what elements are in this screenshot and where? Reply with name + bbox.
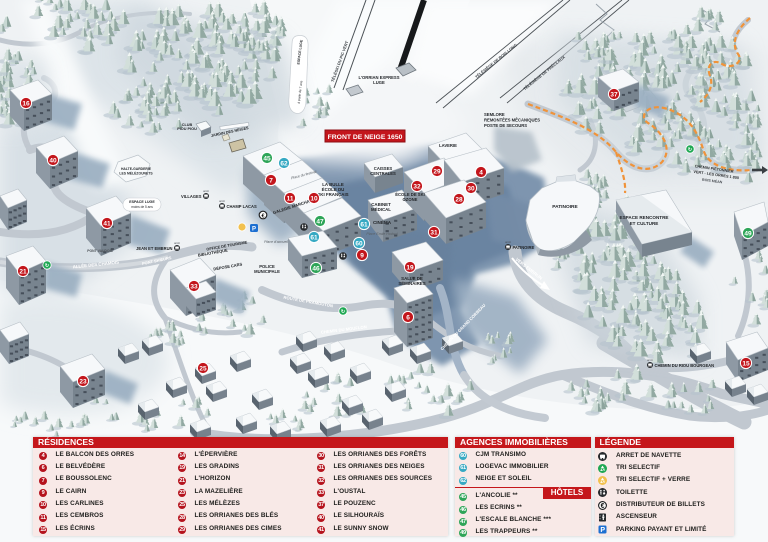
svg-text:19: 19 [406,264,414,271]
svg-text:€: € [601,503,605,510]
svg-text:JEAN ET EMBRUN: JEAN ET EMBRUN [136,246,172,251]
svg-text:LUGE: LUGE [373,80,385,85]
svg-text:CHAMP LACAS: CHAMP LACAS [227,204,257,209]
svg-text:46: 46 [312,265,320,272]
svg-text:€: € [261,214,264,220]
svg-text:61: 61 [310,234,318,241]
svg-text:PIOU PIOU: PIOU PIOU [177,127,197,131]
svg-text:16: 16 [22,100,30,107]
svg-text:6: 6 [406,314,410,321]
svg-text:FRONT DE NEIGE 1650: FRONT DE NEIGE 1650 [328,134,403,141]
svg-text:ESPACE RENCONTRE: ESPACE RENCONTRE [620,215,669,220]
svg-text:CINÉMA: CINÉMA [373,218,392,225]
svg-text:LES MÉLÈZOUNETS: LES MÉLÈZOUNETS [119,171,153,176]
svg-text:P: P [252,227,256,233]
svg-text:10: 10 [310,195,318,202]
svg-text:SEMLORE: SEMLORE [484,112,505,117]
svg-text:60: 60 [355,240,363,247]
svg-text:29: 29 [433,168,441,175]
svg-text:33: 33 [190,283,198,290]
svg-text:↻: ↻ [45,263,49,269]
svg-text:62: 62 [280,160,288,167]
svg-text:SÉMINAIRES: SÉMINAIRES [398,281,425,286]
svg-text:LAVERIE: LAVERIE [439,143,457,148]
svg-text:POSTE DE SECOURS: POSTE DE SECOURS [484,123,527,128]
svg-text:11: 11 [287,195,294,202]
svg-text:ESPACE LUGE: ESPACE LUGE [129,200,155,204]
svg-text:CHEMIN DU RIOU BOURGEAN: CHEMIN DU RIOU BOURGEAN [655,363,715,368]
svg-text:47: 47 [316,218,324,225]
svg-text:PATINOIRE: PATINOIRE [513,245,535,250]
svg-text:41: 41 [103,220,111,227]
svg-text:28: 28 [455,196,463,203]
svg-text:arrêt: arrêt [203,189,209,193]
svg-text:arrêt: arrêt [219,199,225,203]
svg-text:9: 9 [360,252,364,259]
svg-text:arrêt: arrêt [505,240,511,244]
svg-text:25: 25 [199,365,207,372]
svg-text:moins de 5 ans: moins de 5 ans [131,205,153,209]
svg-text:↻: ↻ [688,147,692,153]
svg-text:31: 31 [430,229,438,236]
svg-text:MUNICIPALE: MUNICIPALE [254,269,280,274]
svg-text:PONT VAUDOIS: PONT VAUDOIS [87,249,113,253]
svg-text:VILLAGES: VILLAGES [181,194,202,199]
svg-text:arrêt: arrêt [647,358,653,362]
svg-text:ET CULTURE: ET CULTURE [630,221,659,226]
svg-text:HALTE-GARDERIE: HALTE-GARDERIE [121,167,152,171]
svg-text:PATINOIRE: PATINOIRE [552,204,578,210]
svg-text:21: 21 [19,268,27,275]
svg-text:REMONTÉES MÉCANIQUES: REMONTÉES MÉCANIQUES [484,118,540,123]
svg-text:32: 32 [413,183,421,190]
svg-text:4: 4 [479,169,483,176]
svg-text:49: 49 [744,230,752,237]
svg-text:arrêt: arrêt [174,241,180,245]
svg-text:Place d'accueil: Place d'accueil [264,240,288,244]
svg-text:45: 45 [263,155,271,162]
svg-text:61: 61 [360,221,368,228]
svg-text:37: 37 [610,91,618,98]
svg-text:30: 30 [467,185,475,192]
svg-text:40: 40 [49,157,57,164]
svg-text:Place Emile Hodoul: Place Emile Hodoul [366,232,398,236]
svg-text:15: 15 [742,360,750,367]
svg-text:P: P [600,527,605,534]
svg-text:MÉDICAL: MÉDICAL [371,207,391,212]
svg-text:23: 23 [79,378,87,385]
svg-text:OZONE: OZONE [403,197,418,202]
svg-text:CENTRALES: CENTRALES [370,171,396,176]
svg-text:SKI FRANÇAIS: SKI FRANÇAIS [317,192,348,197]
svg-text:7: 7 [269,177,273,184]
svg-text:↻: ↻ [341,309,345,315]
